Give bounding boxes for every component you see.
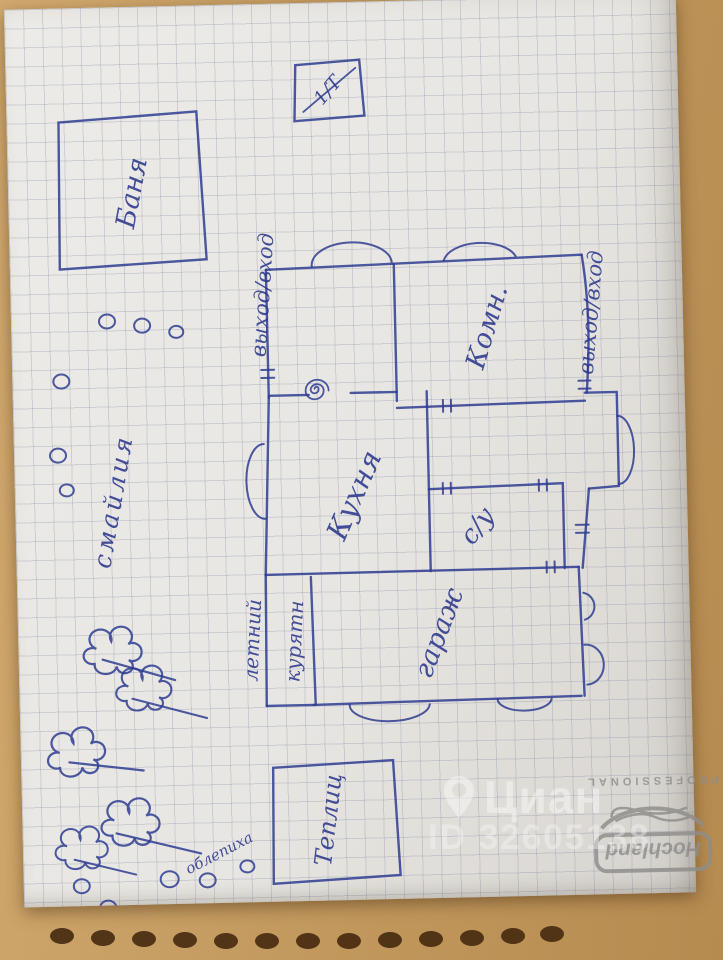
coop-left-wall xyxy=(264,575,269,706)
hochland-subtitle: PROFESSIONAL xyxy=(584,773,719,788)
kitchen-left-arc xyxy=(246,444,266,519)
listing-id-watermark: ID 32605138 xyxy=(428,818,650,858)
hall-room-divider xyxy=(394,264,397,401)
photo-of-floor-plan-sketch: Баня 1/Т выход/вход выход/вход Комн. Кух… xyxy=(0,0,723,960)
top-arc-left xyxy=(311,241,392,266)
coop-label-line2: курятн xyxy=(280,600,308,683)
wc-outline xyxy=(429,483,565,571)
garage-right-hook-bottom xyxy=(584,644,604,684)
coop-label-line1: летний xyxy=(238,599,266,683)
right-outer-wall xyxy=(581,489,591,568)
garage-right-wall xyxy=(579,567,585,696)
cian-watermark: Циан xyxy=(442,770,603,824)
coop-bottom-wall xyxy=(267,705,314,706)
corridor-walls xyxy=(585,392,619,489)
hall-bottom-wall-left xyxy=(269,395,309,396)
garage-top-wall xyxy=(266,567,579,575)
spiral-icon xyxy=(305,379,328,399)
garage-bottom-wall xyxy=(314,696,582,705)
garage-right-hook-top xyxy=(583,592,594,619)
kitchen-right-wall xyxy=(427,391,431,571)
kitchen-left-wall xyxy=(262,398,273,575)
corridor-right-arc xyxy=(617,416,635,484)
tree-sketches xyxy=(41,625,210,877)
bush-circles xyxy=(47,311,256,907)
hall-bottom-wall-right xyxy=(351,392,397,393)
room-bottom-wall xyxy=(397,401,585,408)
location-pin-icon xyxy=(442,774,476,820)
cian-watermark-text: Циан xyxy=(484,770,603,824)
garage-bottom-arc-left xyxy=(350,702,430,722)
coop-garage-divider xyxy=(311,577,316,705)
